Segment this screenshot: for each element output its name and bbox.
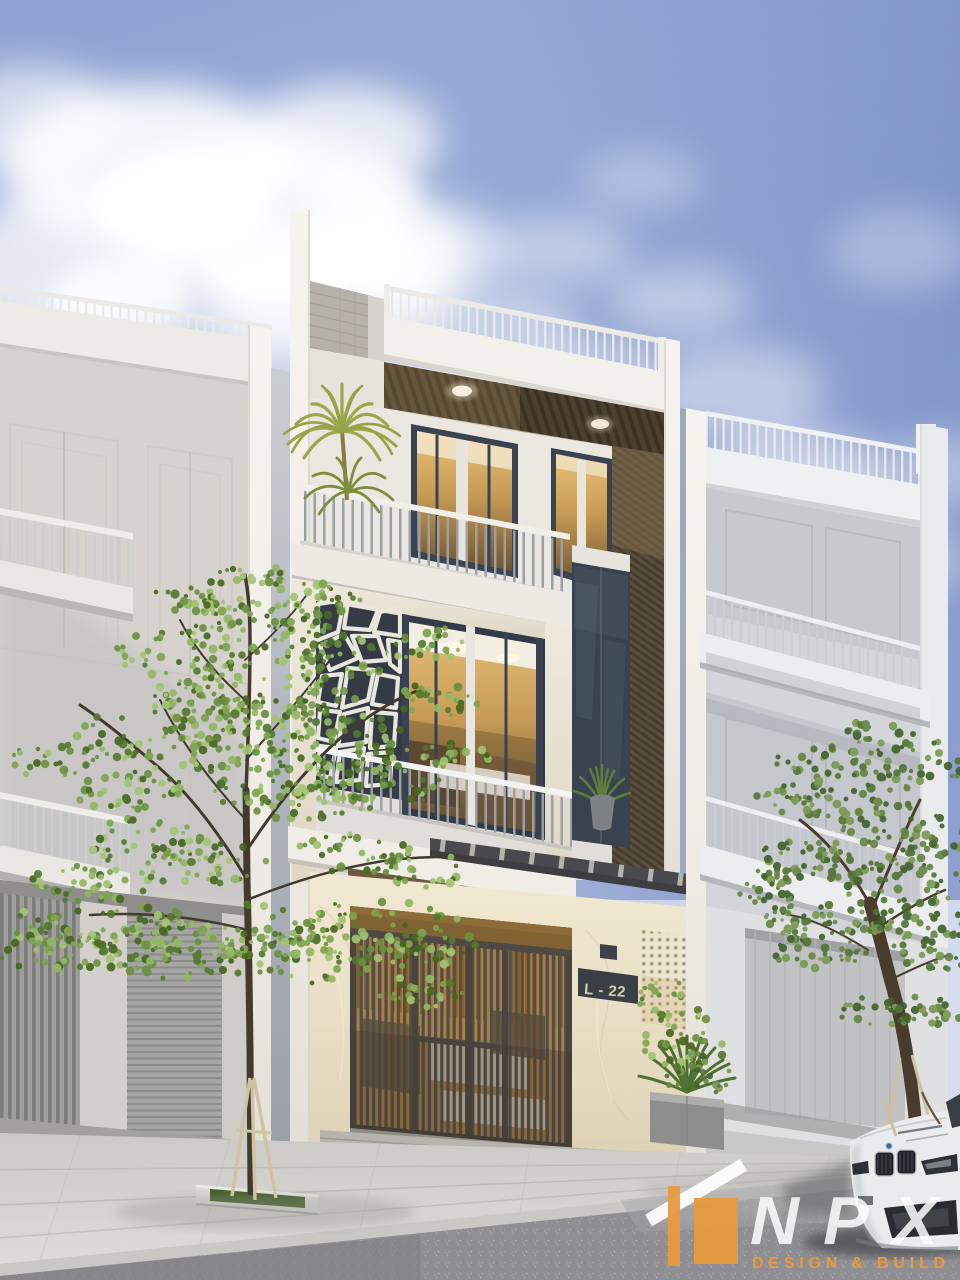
svg-text:DESIGN & BUILD: DESIGN & BUILD (752, 1255, 950, 1272)
svg-text:NPX: NPX (750, 1183, 960, 1259)
svg-text:L - 22: L - 22 (584, 981, 627, 1001)
